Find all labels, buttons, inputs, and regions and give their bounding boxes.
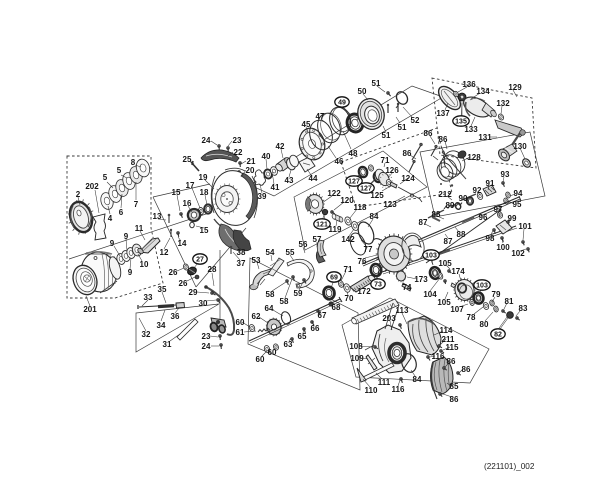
svg-text:104: 104	[423, 290, 437, 299]
svg-text:173: 173	[414, 275, 428, 284]
svg-text:60: 60	[236, 318, 245, 327]
svg-text:14: 14	[178, 239, 187, 248]
svg-text:18: 18	[200, 188, 209, 197]
svg-text:71: 71	[344, 265, 353, 274]
svg-text:119: 119	[329, 225, 342, 234]
svg-text:48: 48	[349, 149, 358, 158]
svg-text:105: 105	[438, 259, 452, 268]
svg-text:88: 88	[432, 210, 441, 219]
svg-text:36: 36	[171, 312, 180, 321]
svg-text:110: 110	[365, 386, 378, 395]
svg-text:84: 84	[370, 212, 379, 221]
svg-text:31: 31	[163, 340, 172, 349]
svg-text:46: 46	[335, 157, 344, 166]
svg-text:132: 132	[496, 99, 510, 108]
svg-text:101: 101	[518, 222, 532, 231]
svg-text:83: 83	[519, 304, 528, 313]
svg-text:45: 45	[302, 120, 311, 129]
svg-text:71: 71	[381, 156, 390, 165]
svg-text:5: 5	[117, 166, 122, 175]
svg-text:67: 67	[318, 311, 327, 320]
svg-text:58: 58	[280, 297, 289, 306]
svg-text:30: 30	[199, 299, 208, 308]
svg-text:66: 66	[311, 324, 320, 333]
svg-text:8: 8	[131, 158, 136, 167]
svg-text:56: 56	[299, 240, 308, 249]
svg-text:73: 73	[374, 282, 382, 289]
svg-text:49: 49	[338, 100, 346, 107]
svg-text:133: 133	[464, 125, 478, 134]
svg-text:120: 120	[340, 196, 354, 205]
svg-text:52: 52	[411, 116, 420, 125]
svg-text:105: 105	[437, 298, 451, 307]
svg-text:126: 126	[385, 166, 399, 175]
svg-text:38: 38	[237, 248, 246, 257]
svg-text:121: 121	[316, 222, 328, 229]
svg-text:64: 64	[265, 304, 274, 313]
svg-text:116: 116	[392, 385, 405, 394]
svg-text:5: 5	[103, 173, 108, 182]
svg-text:33: 33	[144, 293, 153, 302]
svg-text:68: 68	[332, 303, 341, 312]
svg-text:109: 109	[350, 354, 364, 363]
svg-text:41: 41	[271, 183, 280, 192]
svg-text:9: 9	[128, 268, 133, 277]
svg-text:4: 4	[108, 214, 113, 223]
svg-text:127: 127	[360, 186, 372, 193]
svg-text:59: 59	[294, 289, 303, 298]
svg-text:172: 172	[357, 287, 371, 296]
svg-text:69: 69	[330, 275, 338, 282]
svg-text:23: 23	[202, 332, 211, 341]
svg-text:70: 70	[345, 294, 354, 303]
svg-text:20: 20	[246, 166, 255, 175]
svg-text:113: 113	[396, 306, 409, 315]
svg-text:43: 43	[285, 176, 294, 185]
svg-text:22: 22	[234, 148, 243, 157]
svg-text:24: 24	[202, 342, 211, 351]
svg-text:90: 90	[459, 194, 468, 203]
svg-text:118: 118	[354, 203, 367, 212]
svg-text:39: 39	[258, 192, 267, 201]
svg-text:85: 85	[450, 382, 459, 391]
svg-text:77: 77	[364, 245, 373, 254]
svg-text:82: 82	[494, 332, 502, 339]
svg-text:130: 130	[513, 142, 527, 151]
svg-text:124: 124	[401, 174, 415, 183]
svg-text:86: 86	[462, 365, 471, 374]
svg-text:93: 93	[501, 170, 510, 179]
svg-text:86: 86	[424, 129, 433, 138]
svg-text:99: 99	[508, 214, 517, 223]
svg-text:9: 9	[124, 232, 129, 241]
svg-text:2: 2	[76, 190, 81, 199]
svg-text:135: 135	[455, 119, 467, 126]
svg-text:10: 10	[140, 260, 149, 269]
svg-text:(221101)_002: (221101)_002	[484, 462, 535, 471]
svg-text:103: 103	[476, 283, 488, 290]
svg-text:116: 116	[432, 352, 445, 361]
svg-text:26: 26	[169, 268, 178, 277]
svg-text:27: 27	[196, 257, 204, 264]
svg-text:114: 114	[440, 326, 453, 335]
svg-text:100: 100	[496, 243, 510, 252]
svg-text:54: 54	[266, 248, 275, 257]
svg-text:125: 125	[370, 191, 384, 200]
svg-text:37: 37	[237, 259, 246, 268]
svg-text:17: 17	[186, 181, 195, 190]
svg-text:53: 53	[252, 256, 261, 265]
svg-text:127: 127	[348, 179, 360, 186]
svg-text:16: 16	[183, 199, 192, 208]
svg-text:123: 123	[383, 200, 397, 209]
svg-text:136: 136	[462, 80, 476, 89]
svg-text:25: 25	[183, 155, 192, 164]
svg-text:40: 40	[262, 152, 271, 161]
svg-text:12: 12	[160, 248, 169, 257]
svg-text:28: 28	[208, 265, 217, 274]
svg-text:108: 108	[349, 342, 363, 351]
svg-text:202: 202	[85, 182, 99, 191]
svg-text:212: 212	[438, 190, 452, 199]
svg-text:60: 60	[268, 348, 277, 357]
svg-text:87: 87	[419, 218, 428, 227]
svg-text:9: 9	[110, 239, 115, 248]
svg-text:81: 81	[505, 297, 514, 306]
svg-text:15: 15	[200, 226, 209, 235]
svg-text:86: 86	[450, 395, 459, 404]
svg-text:134: 134	[476, 87, 490, 96]
svg-text:92: 92	[473, 186, 482, 195]
svg-text:111: 111	[378, 378, 391, 387]
svg-text:24: 24	[202, 136, 211, 145]
svg-text:107: 107	[450, 305, 464, 314]
svg-text:7: 7	[134, 200, 139, 209]
svg-text:11: 11	[135, 224, 144, 233]
svg-text:62: 62	[252, 312, 261, 321]
svg-text:174: 174	[451, 267, 465, 276]
svg-text:142: 142	[341, 235, 355, 244]
svg-text:47: 47	[316, 112, 325, 121]
svg-text:122: 122	[327, 189, 341, 198]
svg-text:102: 102	[511, 249, 525, 258]
svg-text:115: 115	[446, 343, 459, 352]
svg-text:94: 94	[514, 189, 523, 198]
svg-text:95: 95	[513, 200, 522, 209]
svg-text:29: 29	[189, 288, 198, 297]
svg-text:91: 91	[486, 179, 495, 188]
svg-text:96: 96	[479, 213, 488, 222]
svg-text:13: 13	[153, 212, 162, 221]
svg-text:51: 51	[372, 79, 381, 88]
svg-text:32: 32	[142, 330, 151, 339]
svg-text:55: 55	[286, 248, 295, 257]
svg-text:57: 57	[313, 235, 322, 244]
svg-text:65: 65	[298, 332, 307, 341]
svg-text:42: 42	[276, 142, 285, 151]
svg-text:98: 98	[486, 234, 495, 243]
svg-text:137: 137	[436, 109, 450, 118]
svg-text:6: 6	[119, 208, 124, 217]
svg-text:88: 88	[457, 230, 466, 239]
svg-text:80: 80	[480, 320, 489, 329]
svg-text:74: 74	[403, 283, 412, 292]
svg-text:86: 86	[403, 149, 412, 158]
svg-text:89: 89	[446, 201, 455, 210]
svg-text:128: 128	[467, 153, 481, 162]
svg-text:84: 84	[413, 375, 422, 384]
svg-text:34: 34	[157, 321, 166, 330]
svg-text:103: 103	[425, 253, 437, 260]
svg-text:19: 19	[199, 173, 208, 182]
svg-text:129: 129	[508, 83, 522, 92]
svg-text:79: 79	[492, 290, 501, 299]
svg-text:131: 131	[478, 133, 492, 142]
svg-text:58: 58	[266, 290, 275, 299]
svg-text:21: 21	[247, 157, 256, 166]
svg-text:97: 97	[494, 205, 503, 214]
svg-text:76: 76	[358, 257, 367, 266]
svg-text:44: 44	[309, 174, 318, 183]
svg-text:78: 78	[467, 313, 476, 322]
svg-text:26: 26	[179, 279, 188, 288]
svg-text:87: 87	[444, 237, 453, 246]
svg-text:201: 201	[83, 305, 97, 314]
svg-text:35: 35	[158, 285, 167, 294]
svg-text:51: 51	[398, 123, 407, 132]
svg-text:203: 203	[382, 314, 396, 323]
svg-text:60: 60	[256, 355, 265, 364]
svg-text:51: 51	[382, 131, 391, 140]
svg-text:50: 50	[358, 87, 367, 96]
svg-text:61: 61	[236, 328, 245, 337]
svg-text:86: 86	[447, 357, 456, 366]
svg-text:15: 15	[172, 188, 181, 197]
svg-text:86: 86	[439, 135, 448, 144]
svg-text:63: 63	[284, 340, 293, 349]
svg-text:23: 23	[233, 136, 242, 145]
